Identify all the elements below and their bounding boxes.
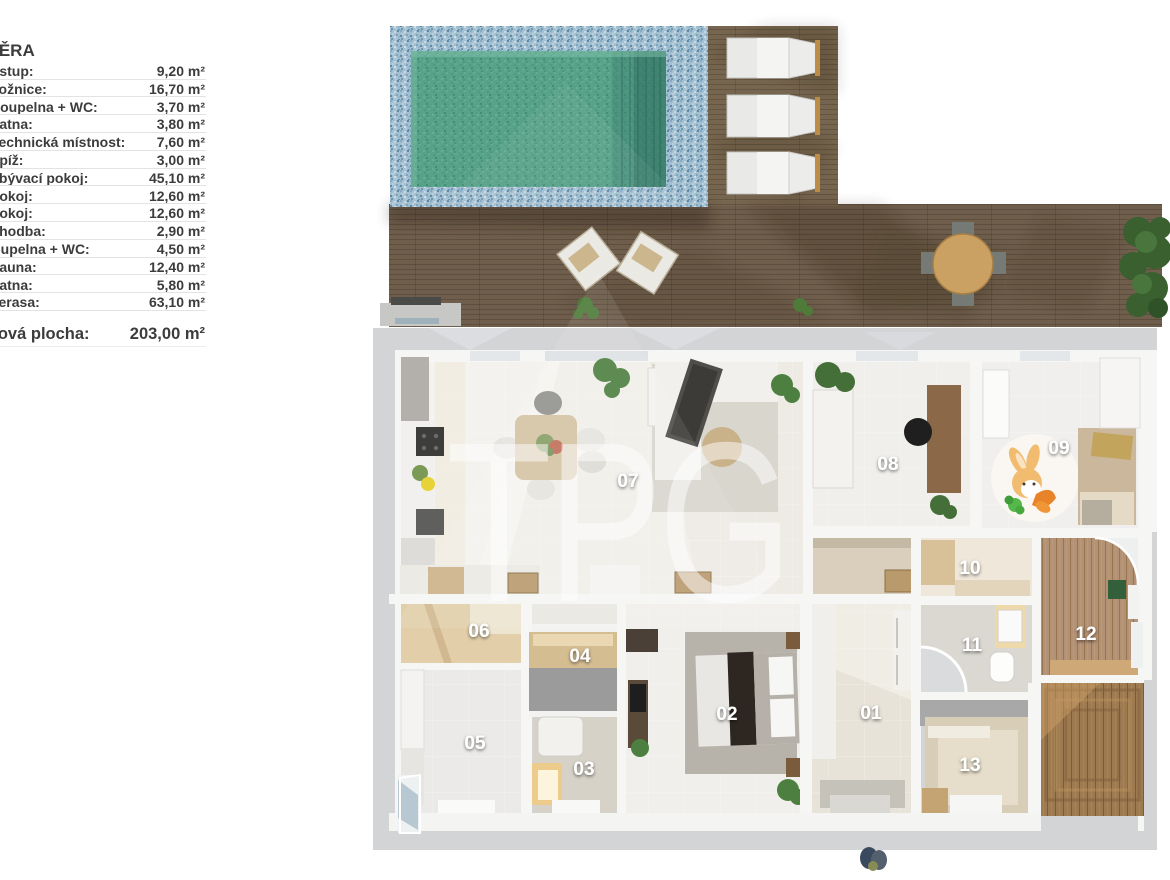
- svg-text:11: 11: [962, 635, 983, 656]
- svg-text:13: 13: [959, 755, 980, 776]
- svg-text:12: 12: [1075, 624, 1096, 645]
- svg-text:TPG: TPG: [446, 395, 789, 649]
- svg-text:03: 03: [573, 759, 594, 780]
- svg-text:09: 09: [1048, 438, 1069, 459]
- svg-text:04: 04: [569, 646, 591, 667]
- svg-text:01: 01: [860, 703, 882, 724]
- svg-text:02: 02: [716, 704, 737, 725]
- svg-text:06: 06: [468, 621, 489, 642]
- svg-text:08: 08: [877, 454, 898, 475]
- svg-text:07: 07: [617, 471, 638, 492]
- svg-text:05: 05: [464, 733, 486, 754]
- svg-text:10: 10: [959, 558, 980, 579]
